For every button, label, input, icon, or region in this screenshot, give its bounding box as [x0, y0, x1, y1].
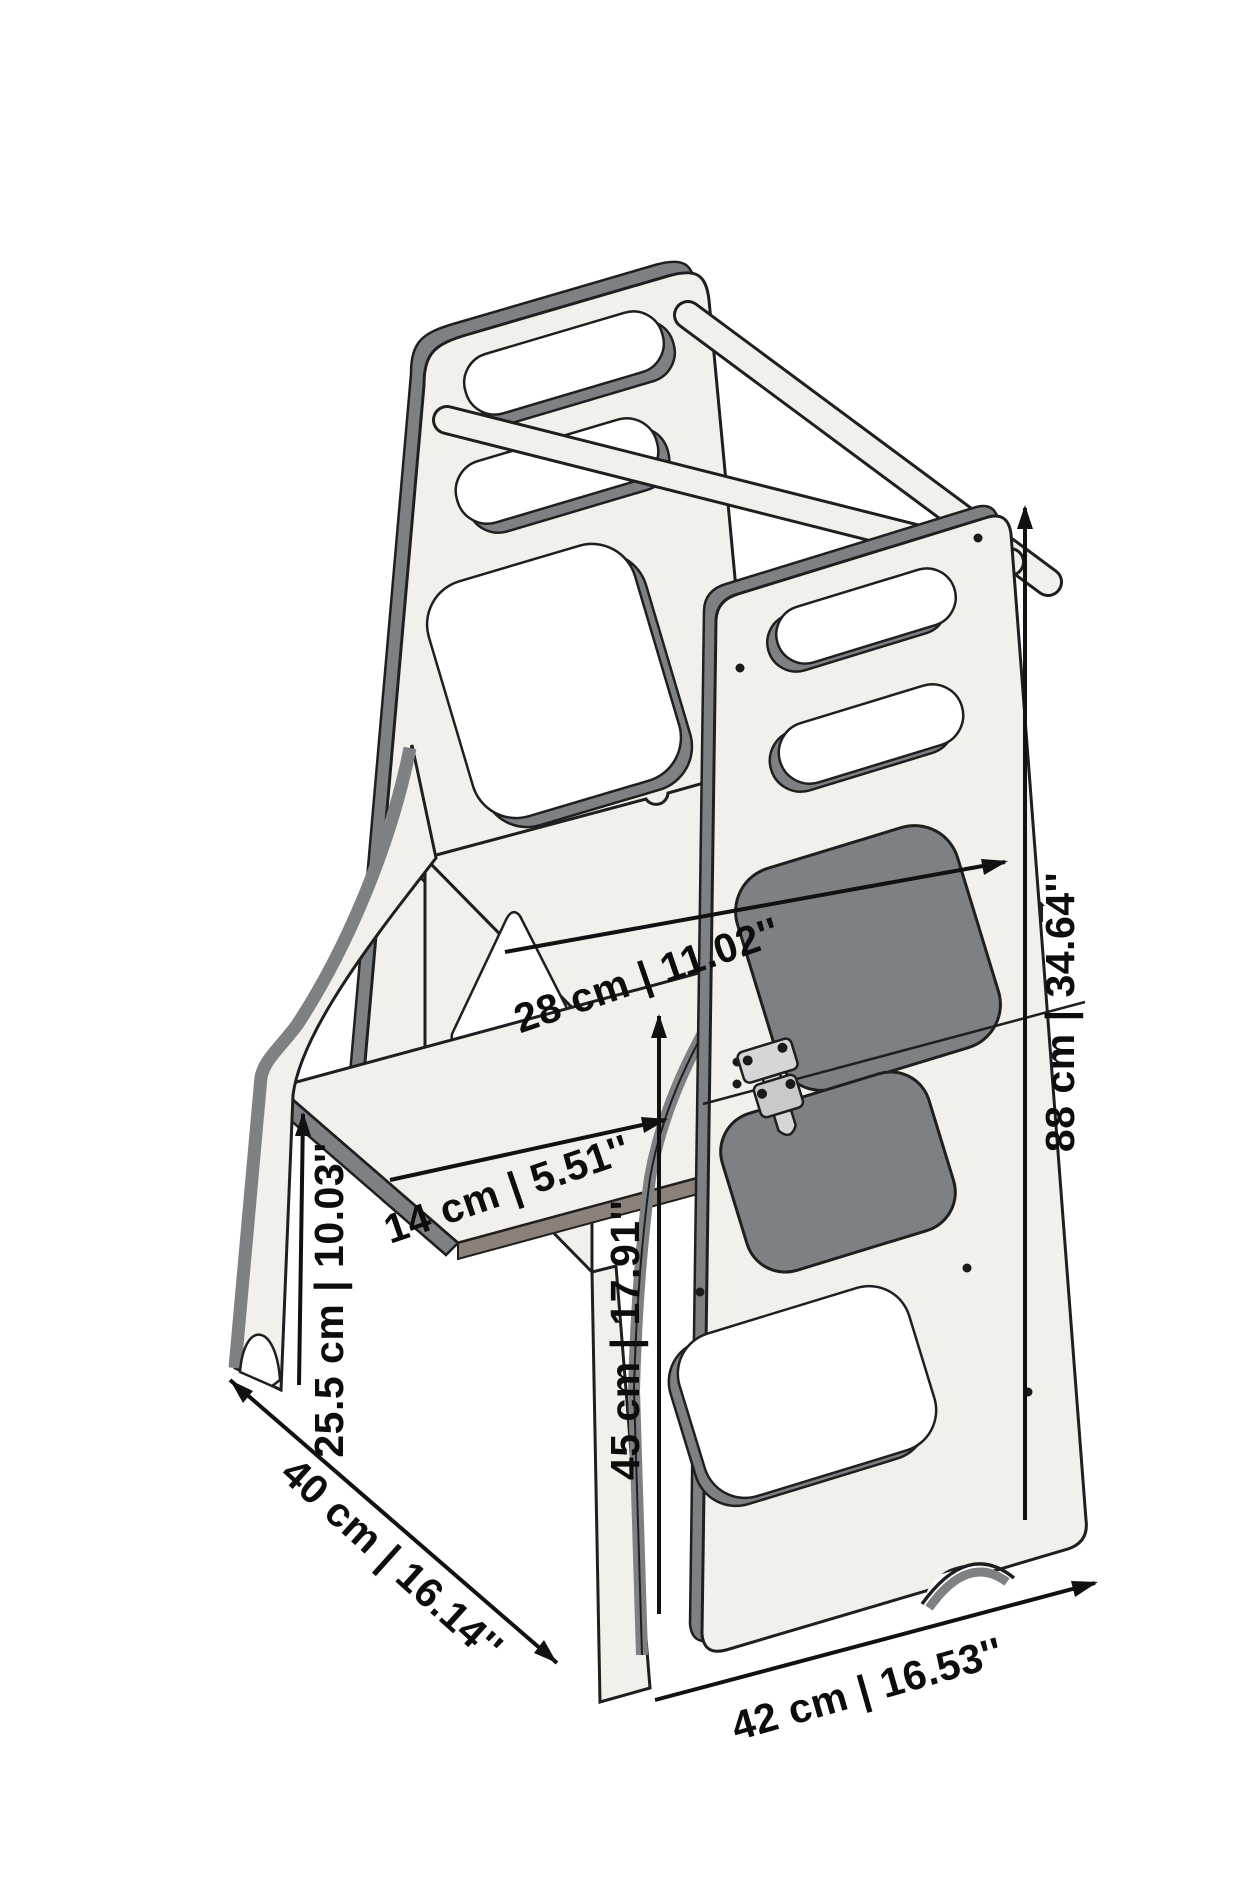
- screw-dot: [736, 664, 745, 673]
- dimension-label-total-height: 88 cm | 34.64'': [1037, 872, 1083, 1152]
- dimension-label-base-depth: 40 cm | 16.14'': [273, 1449, 512, 1671]
- right-panel: [658, 506, 1086, 1651]
- learning-tower-diagram: 28 cm | 11.02'' 14 cm | 5.51'' 25.5 cm |…: [0, 0, 1253, 1880]
- dimension-base-depth: 40 cm | 16.14'': [230, 1380, 557, 1670]
- arrow-icon: [1071, 1581, 1098, 1597]
- technical-drawing-page: 28 cm | 11.02'' 14 cm | 5.51'' 25.5 cm |…: [0, 0, 1253, 1880]
- screw-dot: [696, 1288, 705, 1297]
- screw-dot: [733, 1080, 742, 1089]
- dimension-step-height: 25.5 cm | 10.03'': [295, 1112, 352, 1458]
- dimension-label-step-height: 25.5 cm | 10.03'': [306, 1142, 352, 1457]
- screw-dot: [963, 1264, 972, 1273]
- arrow-icon: [1017, 505, 1033, 529]
- dimension-label-base-width: 42 cm | 16.53'': [726, 1628, 1008, 1749]
- dimension-label-platform-height: 45 cm | 17.91'': [602, 1200, 648, 1480]
- screw-dot: [974, 534, 983, 543]
